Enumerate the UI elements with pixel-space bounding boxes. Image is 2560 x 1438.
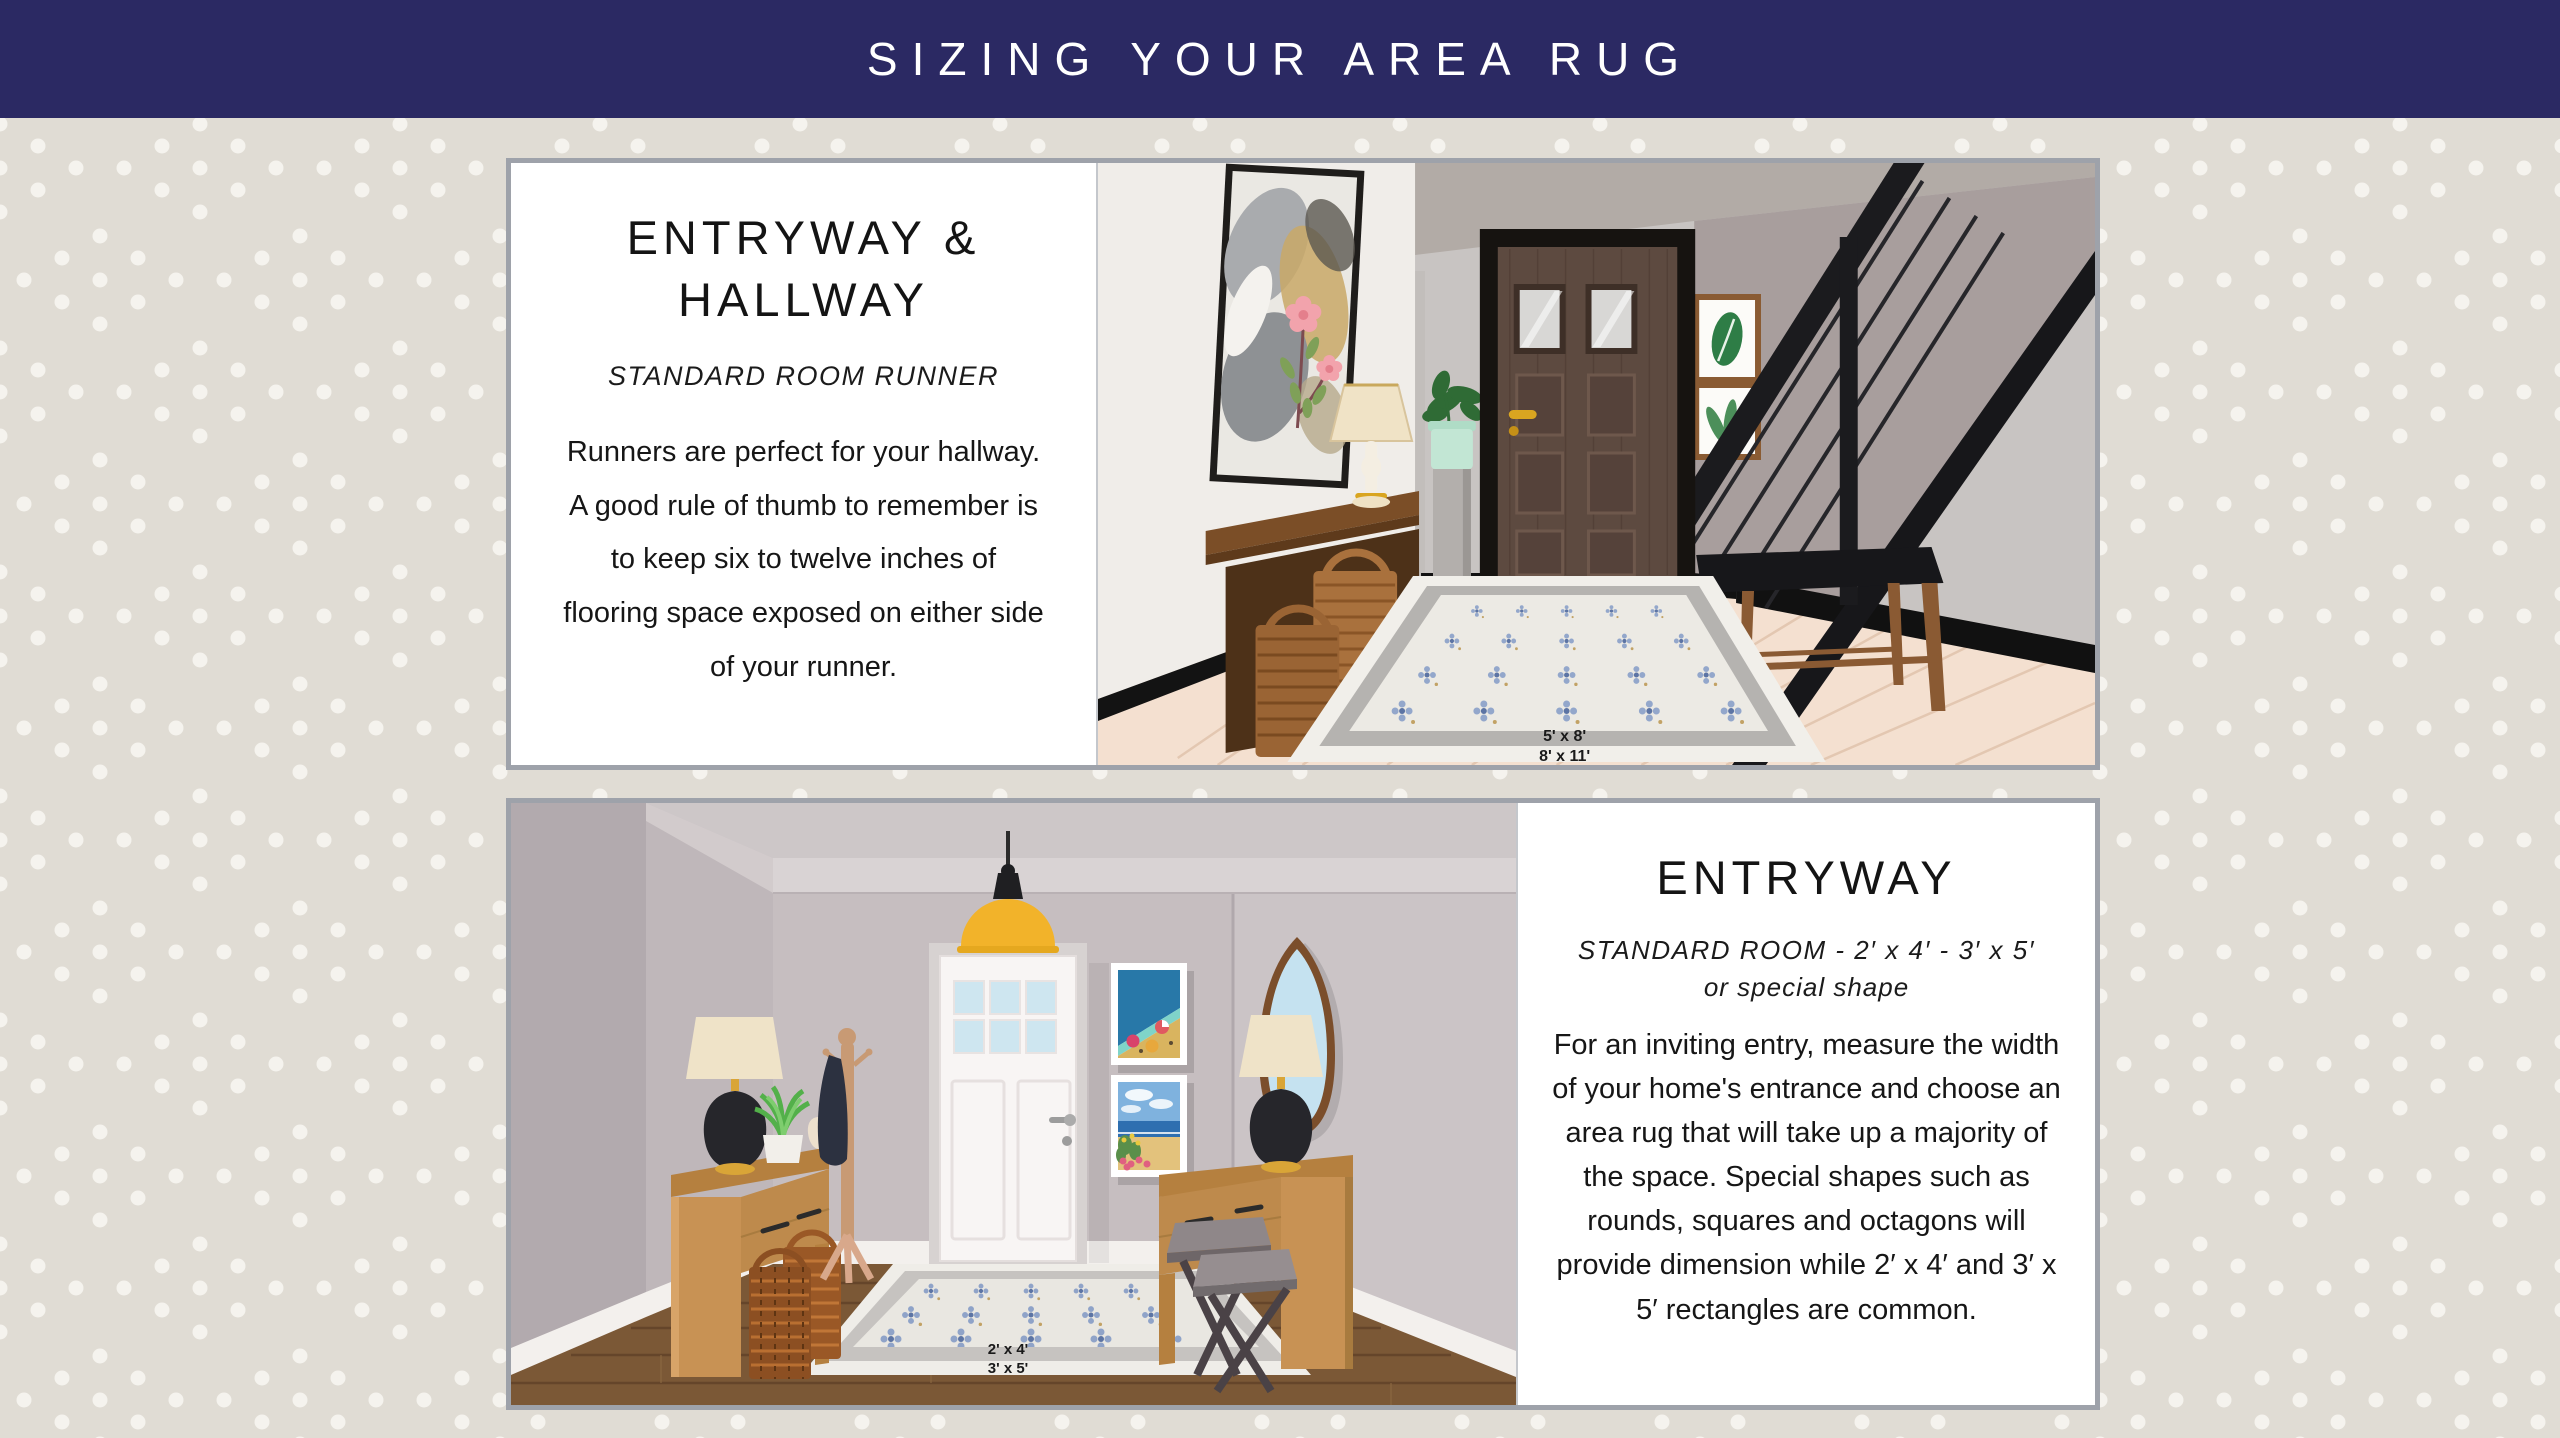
panel-subtitle: STANDARD ROOM RUNNER: [555, 361, 1052, 392]
panel-entryway-hallway: ENTRYWAY & HALLWAY STANDARD ROOM RUNNER …: [506, 158, 2100, 770]
panel-body-text: Runners are perfect for your hallway. A …: [561, 426, 1046, 694]
infographic-page: SIZING YOUR AREA RUG ENTRYWAY & HALLWAY …: [0, 0, 2560, 1438]
wicker-baskets: [749, 1233, 841, 1380]
entryway-text-card: ENTRYWAY STANDARD ROOM - 2′ x 4′ - 3′ x …: [1518, 803, 2095, 1405]
entryway-hallway-text-card: ENTRYWAY & HALLWAY STANDARD ROOM RUNNER …: [511, 163, 1096, 765]
white-door: [929, 943, 1109, 1264]
panel-subtitle-line2: or special shape: [1544, 972, 2069, 1003]
panel-entryway: 2' x 4' 3' x 5': [506, 798, 2100, 1410]
title-bar: SIZING YOUR AREA RUG: [0, 0, 2560, 118]
entryway-illustration: 2' x 4' 3' x 5': [511, 803, 1516, 1405]
door-handle: [1509, 410, 1537, 419]
ceiling: [646, 803, 1516, 858]
front-door: [1480, 229, 1695, 589]
panel-subtitle-line1: STANDARD ROOM - 2′ x 4′ - 3′ x 5′: [1544, 935, 2069, 966]
hallway-scene: 5' x 8' 8' x 11': [1096, 163, 2095, 765]
panel-body-text: For an inviting entry, measure the width…: [1544, 1023, 2069, 1332]
page-title: SIZING YOUR AREA RUG: [867, 32, 1693, 86]
rug-size-label-2: 3' x 5': [988, 1360, 1029, 1377]
panel-heading: ENTRYWAY & HALLWAY: [555, 207, 1052, 331]
crown-molding: [773, 858, 1516, 893]
rug-size-label-2: 8' x 11': [1539, 748, 1590, 765]
hallway-illustration: 5' x 8' 8' x 11': [1098, 163, 2095, 765]
entryway-scene: 2' x 4' 3' x 5': [511, 803, 1518, 1405]
rug-size-label-1: 2' x 4': [988, 1341, 1029, 1358]
panel-heading: ENTRYWAY: [1544, 847, 2069, 909]
rug-size-label-1: 5' x 8': [1543, 728, 1586, 745]
